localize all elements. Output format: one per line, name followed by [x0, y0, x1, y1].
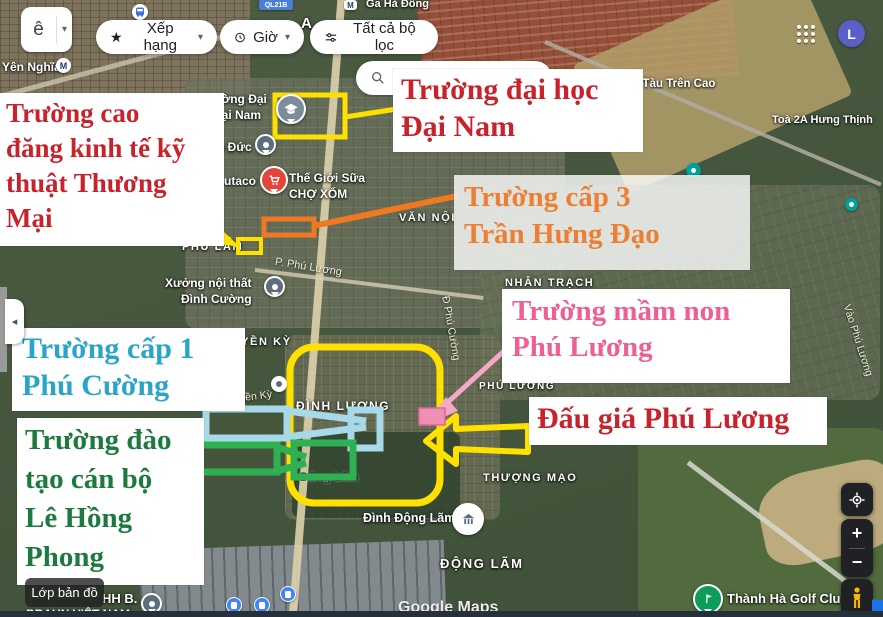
map-label-xuong-line1[interactable]: Xưởng nội thất	[165, 276, 252, 290]
zoom-control: + −	[841, 519, 873, 577]
graduation-cap-icon	[283, 101, 299, 117]
rating-filter-label: Xếp hạng	[130, 20, 191, 54]
annotation-line: Trường cấp 3	[464, 179, 740, 216]
annotation-line: Lê Hồng	[25, 499, 196, 538]
filter-sliders-icon	[324, 30, 338, 45]
all-filters-label: Tất cả bộ lọc	[345, 20, 424, 54]
chevron-down-icon: ▾	[285, 32, 290, 43]
annotation-line: Trường đại học	[401, 71, 635, 108]
map-label-van-noi: VĂN NỘI	[399, 212, 456, 224]
hours-filter-label: Giờ	[253, 29, 278, 46]
sidebar-collapse-tab[interactable]: ◂	[5, 299, 24, 344]
metro-badge-ga-ha-dong[interactable]: M	[344, 0, 357, 10]
road-badge-ql21b: QL21B	[259, 0, 293, 10]
star-icon: ★	[110, 29, 123, 46]
account-avatar[interactable]: L	[838, 20, 865, 47]
all-filters-button[interactable]: Tất cả bộ lọc	[310, 20, 438, 54]
metro-station-icon[interactable]: M	[56, 58, 71, 73]
annotation-line: thuật Thương	[6, 166, 218, 201]
map-label-dong-lam: ĐỘNG LÃM	[440, 556, 524, 571]
annotation-dau-gia-phu-luong: Đấu giá Phú Lương	[529, 397, 827, 445]
annotation-line: Trường đào	[25, 421, 196, 460]
google-apps-grid-icon[interactable]	[797, 25, 815, 43]
temple-icon	[460, 511, 477, 528]
annotation-line: Phú Cường	[22, 367, 235, 404]
zoom-out-button[interactable]: −	[852, 549, 863, 578]
shopping-cart-icon	[268, 174, 281, 187]
annotation-line: Đấu giá Phú Lương	[537, 397, 819, 441]
chevron-down-icon: ▾	[198, 32, 203, 43]
map-label-the-gioi-sua-line1[interactable]: Thế Giới Sữa	[289, 171, 365, 185]
map-label-utaco[interactable]: utaco	[224, 174, 256, 188]
search-icon	[370, 70, 386, 86]
map-layers-label: Lớp bản đồ	[31, 585, 97, 600]
annotation-line: Trường mầm non	[512, 293, 780, 329]
map-label-ga-ha-dong[interactable]: Ga Hà Đông	[366, 0, 429, 10]
annotation-line: tạo cán bộ	[25, 460, 196, 499]
map-label-xuong-line2[interactable]: Đình Cường	[181, 292, 252, 306]
rating-filter-button[interactable]: ★ Xếp hạng ▾	[96, 20, 217, 54]
annotation-line: Trường cấp 1	[22, 330, 235, 367]
map-layers-button[interactable]: Lớp bản đồ	[25, 578, 104, 607]
annotation-cao-dang-thuong-mai: Trường cao đăng kinh tế kỹ thuật Thương …	[0, 93, 224, 246]
zoom-in-button[interactable]: +	[852, 519, 863, 548]
google-maps-screenshot: Yên Nghĩa QL21B Ga Hà Đông A t Ga Tàu Tr…	[0, 0, 883, 617]
map-label-yen-nghia[interactable]: Yên Nghĩa	[2, 60, 61, 74]
annotation-line: Đại Nam	[401, 108, 635, 145]
annotation-cap3-tran-hung-dao: Trường cấp 3 Trần Hưng Đạo	[454, 175, 750, 270]
chevron-left-icon: ◂	[12, 315, 18, 328]
pegman-icon	[850, 587, 864, 609]
annotation-line: Phong	[25, 538, 196, 577]
map-label-hh-b[interactable]: HH B.	[102, 591, 137, 606]
avatar-letter: L	[847, 26, 856, 42]
annotation-cap1-phu-cuong: Trường cấp 1 Phú Cường	[12, 328, 245, 411]
annotation-line: Trường cao	[6, 96, 218, 131]
poi-marker-dinh-cuong[interactable]	[264, 276, 285, 297]
annotation-line: Phú Lương	[512, 329, 780, 365]
golf-marker-thanh-ha[interactable]	[693, 584, 723, 614]
poi-marker-u-duc[interactable]	[255, 134, 276, 155]
my-location-button[interactable]	[841, 483, 873, 516]
map-label-thuong-mao: THƯỢNG MẠO	[483, 472, 577, 484]
map-label-golf-club[interactable]: Thành Hà Golf Clu.	[727, 591, 844, 606]
annotation-line: đăng kinh tế kỹ	[6, 131, 218, 166]
map-label-the-gioi-sua-line2[interactable]: CHỢ XỐM	[289, 187, 347, 201]
bus-stop-icon-3[interactable]	[280, 586, 296, 602]
annotation-dai-hoc-dai-nam: Trường đại học Đại Nam	[393, 69, 643, 152]
bottom-edge-strip	[0, 611, 883, 617]
university-marker-dai-nam[interactable]	[276, 94, 306, 124]
bus-glyph	[135, 7, 145, 17]
annotation-line: Mại	[6, 201, 218, 236]
annotation-dao-tao-le-hong-phong: Trường đào tạo cán bộ Lê Hồng Phong	[17, 418, 204, 585]
golf-flag-icon	[701, 592, 715, 606]
bus-stop-icon-top[interactable]	[132, 4, 148, 20]
my-location-icon	[848, 491, 866, 509]
map-label-dinh-dong-lam[interactable]: Đình Động Lãm	[363, 511, 455, 525]
poi-marker-teal-right[interactable]	[845, 198, 858, 211]
hours-filter-button[interactable]: Giờ ▾	[220, 20, 304, 54]
map-label-nhan-trach: NHÂN TRẠCH	[505, 277, 594, 289]
map-label-dinh-luong: ĐÌNH LƯƠNG	[296, 399, 390, 413]
map-label-toa-2a: Toà 2A Hưng Thịnh	[772, 114, 873, 126]
collapsed-dropdown[interactable]: ê ▾	[21, 7, 72, 52]
annotation-mam-non-phu-luong: Trường mầm non Phú Lương	[502, 289, 790, 383]
collapsed-dropdown-text: ê	[21, 19, 56, 41]
temple-marker-dinh-dong-lam[interactable]	[452, 503, 484, 535]
store-marker-cho-xom[interactable]	[260, 166, 288, 194]
poi-marker-white-circle[interactable]	[271, 376, 287, 392]
annotation-line: Trần Hưng Đạo	[464, 216, 740, 253]
chevron-down-icon[interactable]: ▾	[57, 24, 72, 35]
map-label-dong-lam-small: Động Lâm	[300, 470, 359, 484]
clock-icon	[234, 30, 246, 45]
